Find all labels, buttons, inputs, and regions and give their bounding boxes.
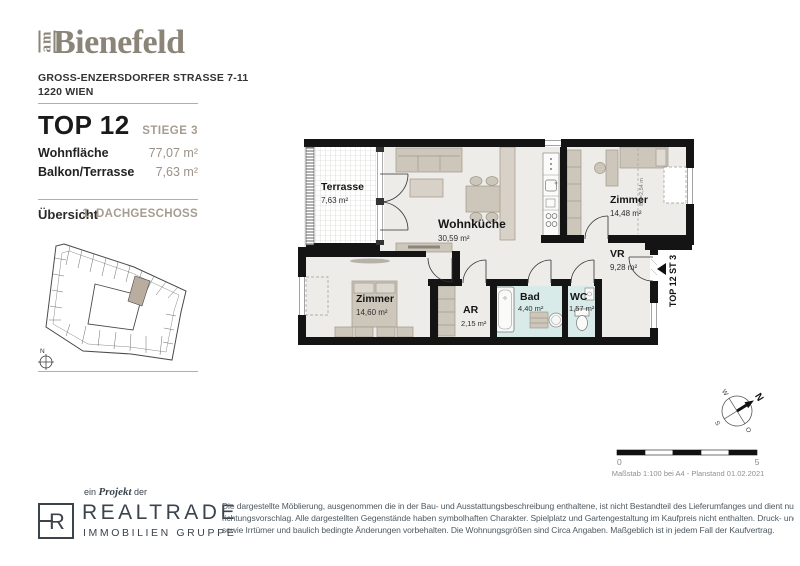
fact-label: Balkon/Terrasse (38, 165, 134, 179)
realtrade-name: REALTRADE (82, 501, 238, 525)
room-area-wohnkueche: 30,59 m² (438, 234, 470, 243)
compass-o: O (744, 426, 753, 434)
room-area-ar: 2,15 m² (461, 319, 487, 328)
room-label-wohnkueche: Wohnküche (438, 217, 506, 231)
project-byline: ein Projekt der (84, 486, 147, 498)
room-area-vr: 9,28 m² (610, 263, 637, 272)
legal-disclaimer: Die dargestellte Möblierung, ausgenommen… (222, 501, 794, 536)
coffee-table (410, 179, 443, 197)
scale-start: 0 (617, 457, 622, 467)
floorplan-sheet: am Bienefeld GROSS-ENZERSDORFER STRASSE … (0, 0, 800, 566)
room-label-vr: VR (610, 248, 625, 260)
divider (38, 371, 198, 372)
room-area-zimmer-2: 14,60 m² (356, 308, 388, 317)
compass-w: W (720, 388, 730, 398)
terrace-parapet (306, 147, 314, 245)
scale-caption: Maßstab 1:100 bei A4 - Planstand 01.02.2… (612, 469, 764, 478)
dresser (397, 327, 413, 337)
unit-title: TOP 12 (38, 110, 130, 141)
dresser (355, 327, 373, 337)
entrance-label: TOP 12 ST 3 (668, 255, 678, 307)
dining-chair (486, 177, 498, 186)
wardrobe (567, 150, 581, 237)
compass-rose: N W S O (700, 381, 776, 443)
fact-label: Wohnfläche (38, 146, 109, 160)
divider (38, 199, 198, 200)
dresser (335, 327, 353, 337)
brand-logo-name: Bienefeld (53, 24, 184, 62)
overview-header: Übersicht 1. DACHGESCHOSS (38, 207, 198, 222)
room-area-zimmer-1: 14,48 m² (610, 209, 642, 218)
realtrade-subtitle: IMMOBILIEN GRUPPE (83, 527, 236, 539)
fact-value: 77,07 m² (149, 146, 198, 160)
room-area-terrasse: 7,63 m² (321, 196, 348, 205)
dining-table (466, 186, 502, 212)
north-arrow-icon (737, 405, 747, 411)
siteplan-compass: N (38, 348, 54, 370)
room-label-zimmer-2: Zimmer (356, 293, 394, 305)
sofa (396, 148, 462, 172)
room-label-zimmer-1: Zimmer (610, 194, 648, 206)
room-area-bad: 4,40 m² (518, 304, 544, 313)
fact-row-balkon: Balkon/Terrasse 7,63 m² (38, 165, 198, 179)
room-label-bad: Bad (520, 291, 540, 303)
room-label-terrasse: Terrasse (321, 181, 364, 193)
dresser (377, 327, 395, 337)
disclaimer-line: Die dargestellte Möblierung, ausgenommen… (222, 501, 794, 513)
desk (606, 150, 618, 186)
room-label-wc: WC (570, 291, 588, 303)
address-line2: 1220 WIEN (38, 85, 248, 99)
realtrade-logo-bar (40, 520, 53, 522)
room-area-wc: 1,57 m² (569, 304, 595, 313)
staircase-label: STIEGE 3 (142, 125, 198, 137)
unit-header: TOP 12 STIEGE 3 (38, 110, 198, 141)
overview-floor: 1. DACHGESCHOSS (82, 208, 198, 220)
compass-s: S (713, 420, 722, 428)
byline-suffix: der (134, 487, 147, 497)
fact-value: 7,63 m² (156, 165, 198, 179)
compass-n: N (752, 392, 765, 404)
divider (38, 103, 198, 104)
kitchen-counter (543, 153, 559, 238)
byline-word: Projekt (99, 486, 132, 498)
toilet (577, 316, 588, 331)
fact-row-wohnflaeche: Wohnfläche 77,07 m² (38, 146, 198, 160)
pillow (656, 149, 666, 166)
roof-window-outline (664, 167, 686, 203)
pillow (376, 283, 395, 293)
site-plan-overview: N (36, 232, 198, 372)
radiator (350, 259, 390, 264)
byline-prefix: ein (84, 487, 96, 497)
scale-end: 5 (755, 457, 760, 467)
pillow (354, 283, 374, 293)
siteplan-compass-n-label: N (40, 348, 45, 355)
apartment-floor-plan: BH=2,54 m Terrasse 7,63 m² Wohnküche 30,… (296, 134, 700, 354)
chair (595, 163, 606, 174)
address-line1: GROSS-ENZERSDORFER STRASSE 7-11 (38, 71, 248, 85)
realtrade-logo-letter: R (49, 509, 65, 535)
washbasin (549, 313, 563, 327)
dining-chair (470, 177, 482, 186)
project-address: GROSS-ENZERSDORFER STRASSE 7-11 1220 WIE… (38, 71, 248, 99)
brand-logo: am Bienefeld (36, 24, 206, 66)
vanity (530, 312, 548, 328)
disclaimer-line: sowie Irrtümer und baulich bedingte Ände… (222, 525, 794, 537)
scale-bar: 0 5 Maßstab 1:100 bei A4 - Planstand 01.… (612, 446, 772, 480)
shelving (438, 286, 455, 336)
room-label-ar: AR (463, 304, 479, 316)
disclaimer-line: richtungsvorschlag. Alle dargestellten G… (222, 513, 794, 525)
